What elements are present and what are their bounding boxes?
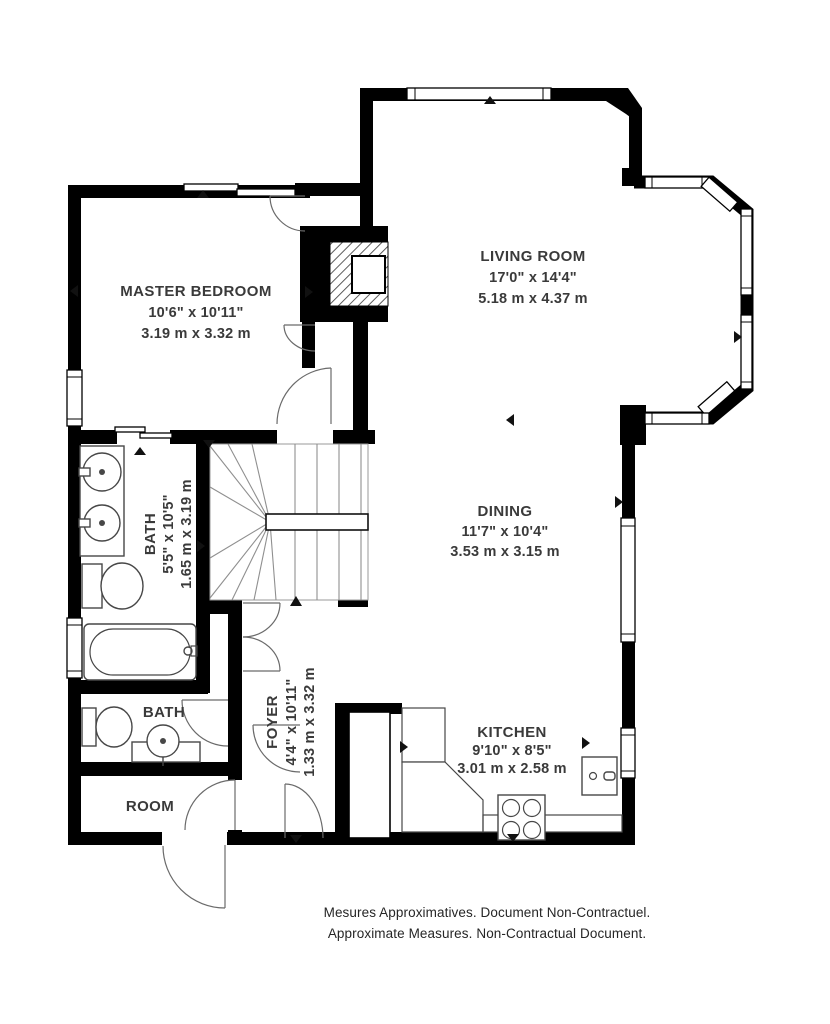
faucet-1 xyxy=(79,468,90,476)
room-name: ROOM xyxy=(126,798,174,815)
bath-imperial: 5'5" x 10'5" xyxy=(161,494,177,574)
kitchen-name: KITCHEN xyxy=(477,724,546,741)
wall-bath-top-a xyxy=(68,430,117,444)
wall-bottom-right xyxy=(227,832,628,845)
wall-stairs-left xyxy=(196,430,210,693)
window-bay-bottom xyxy=(645,413,709,424)
dining-imperial: 11'7" x 10'4" xyxy=(462,524,549,540)
wall-bay-outline xyxy=(634,182,747,418)
floor-plan-page: MASTER BEDROOM 10'6" x 10'11" 3.19 m x 3… xyxy=(0,0,830,1024)
door-foyer-kitchen xyxy=(285,784,323,838)
label-dining: DINING 11'7" x 10'4" 3.53 m x 3.15 m xyxy=(450,503,559,560)
kitchen-metric: 3.01 m x 2.58 m xyxy=(457,761,566,777)
foyer-metric: 1.33 m x 3.32 m xyxy=(302,667,318,776)
window-master-left xyxy=(67,370,82,426)
bath2-name: BATH xyxy=(143,704,185,721)
master-bedroom-metric: 3.19 m x 3.32 m xyxy=(141,326,250,342)
window-bay-right-lower xyxy=(741,315,752,389)
label-master-bedroom: MASTER BEDROOM 10'6" x 10'11" 3.19 m x 3… xyxy=(120,283,271,342)
window-bath-left xyxy=(67,618,82,678)
bath-metric: 1.65 m x 3.19 m xyxy=(179,479,195,588)
toilet2-tank xyxy=(82,708,96,746)
disclaimer-line-en: Approximate Measures. Non-Contractual Do… xyxy=(328,926,646,941)
wall-foyer-left-upper xyxy=(228,612,242,780)
label-living-room: LIVING ROOM 17'0" x 14'4" 5.18 m x 4.37 … xyxy=(478,248,587,307)
dining-metric: 3.53 m x 3.15 m xyxy=(450,544,559,560)
living-room-imperial: 17'0" x 14'4" xyxy=(489,270,577,286)
sink-drain-1 xyxy=(99,469,105,475)
door-room xyxy=(185,780,235,830)
bath-name: BATH xyxy=(142,513,159,555)
window-living-top xyxy=(407,88,551,100)
window-bay-top xyxy=(645,177,709,188)
door-bath2 xyxy=(182,700,228,746)
wall-stairs-foot xyxy=(196,600,242,614)
wall-stairs-top-b xyxy=(333,430,375,444)
wall-left xyxy=(68,185,81,845)
tick-kitchen-right xyxy=(582,737,590,749)
window-dining-right xyxy=(621,518,635,642)
label-kitchen: KITCHEN 9'10" x 8'5" 3.01 m x 2.58 m xyxy=(457,724,566,777)
wall-living-left xyxy=(360,88,373,238)
wall-kitchen-west xyxy=(335,703,349,845)
window-bay-right-upper xyxy=(741,209,752,295)
kitchen-imperial: 9'10" x 8'5" xyxy=(472,743,552,759)
sliding-door-bath xyxy=(115,427,172,438)
toilet-tank xyxy=(82,564,102,608)
wall-master-east xyxy=(302,322,315,368)
label-bath: BATH 5'5" x 10'5" 1.65 m x 3.19 m xyxy=(142,479,195,588)
tick-dining-right xyxy=(615,496,623,508)
pantry-closet xyxy=(349,712,390,838)
disclaimer-line-fr: Mesures Approximatives. Document Non-Con… xyxy=(324,905,651,920)
wall-room-top xyxy=(68,762,242,776)
disclaimer: Mesures Approximatives. Document Non-Con… xyxy=(324,905,651,941)
door-main-entry xyxy=(163,845,225,908)
faucet-2 xyxy=(79,519,90,527)
stair-handrail xyxy=(266,514,368,530)
toilet-bowl xyxy=(101,563,143,609)
foyer-imperial: 4'4" x 10'11" xyxy=(284,679,300,766)
window-kitchen-right xyxy=(621,728,635,778)
tick-kitchen-left xyxy=(400,741,408,753)
dining-name: DINING xyxy=(478,503,533,520)
tick-living-bottom xyxy=(506,414,514,426)
master-bedroom-name: MASTER BEDROOM xyxy=(120,283,271,300)
living-room-name: LIVING ROOM xyxy=(480,248,585,265)
floor-plan-drawing: MASTER BEDROOM 10'6" x 10'11" 3.19 m x 3… xyxy=(0,0,830,1024)
living-room-metric: 5.18 m x 4.37 m xyxy=(478,291,587,307)
tick-bath-top xyxy=(134,447,146,455)
sink-drain-2 xyxy=(99,520,105,526)
wall-foyer-left-lower xyxy=(228,830,242,845)
chimney-column xyxy=(300,226,330,322)
sink2-drain xyxy=(160,738,166,744)
counter-upper xyxy=(402,708,445,762)
staircase xyxy=(210,444,368,606)
wall-bottom-left xyxy=(68,832,162,845)
toilet2-bowl xyxy=(96,707,132,747)
master-bedroom-imperial: 10'6" x 10'11" xyxy=(148,305,243,321)
wall-bath-bottom xyxy=(68,680,208,694)
door-understair-closet xyxy=(243,603,280,671)
foyer-name: FOYER xyxy=(264,695,281,749)
label-foyer: FOYER 4'4" x 10'11" 1.33 m x 3.32 m xyxy=(264,667,318,776)
dishwasher-handle xyxy=(604,772,615,780)
door-master-closet xyxy=(270,196,305,231)
fireplace-firebox xyxy=(352,256,385,293)
door-master-entry xyxy=(277,368,331,424)
wall-bath-top-b xyxy=(170,430,210,444)
